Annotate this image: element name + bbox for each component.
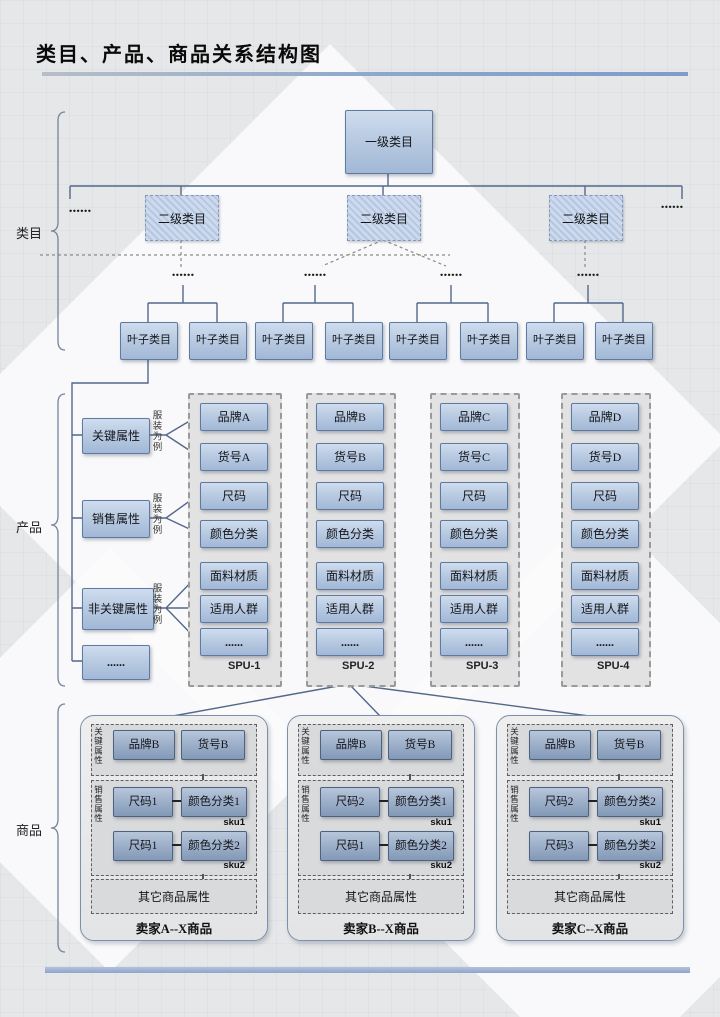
- sku-size-box: 尺码2: [320, 787, 380, 817]
- spu2-attr: 品牌B: [316, 403, 384, 431]
- sku-tag: sku2: [388, 860, 452, 871]
- attr-group-key: 关键属性: [82, 418, 150, 454]
- attr-group-nonkey: 非关键属性: [82, 588, 154, 630]
- item-no-box: 货号B: [597, 730, 661, 760]
- sales-attr-vertical-label: 销售属性: [510, 785, 519, 835]
- key-attr-vertical-label: 关键属性: [94, 727, 103, 773]
- spu4-attr: 适用人群: [571, 595, 639, 623]
- title-rule: [42, 72, 688, 76]
- footer-bar: [45, 967, 690, 973]
- level2-category-box: 二级类目: [145, 195, 219, 241]
- spu3-attr: ......: [440, 628, 508, 656]
- brand-box: 品牌B: [113, 730, 175, 760]
- section-label-product: 产品: [16, 517, 42, 536]
- spu2-attr: 适用人群: [316, 595, 384, 623]
- ellipsis-omitted-levels: ......: [565, 264, 611, 281]
- sku-tag: sku1: [181, 817, 245, 828]
- sku-size-box: 尺码1: [113, 831, 173, 861]
- group-connector: [409, 774, 411, 780]
- group-connector: [202, 874, 204, 879]
- sku-tag: sku2: [597, 860, 661, 871]
- spu1-attr: 品牌A: [200, 403, 268, 431]
- group-connector: [202, 774, 204, 780]
- other-attr-label: 其它商品属性: [345, 888, 417, 905]
- sku-link: [379, 800, 388, 802]
- root-category-box: 一级类目: [345, 110, 433, 174]
- sku-size-box: 尺码2: [529, 787, 589, 817]
- leaf-category-box: 叶子类目: [526, 322, 584, 360]
- sku-link: [379, 844, 388, 846]
- seller-card-label: 卖家A--X商品: [81, 918, 267, 937]
- spu3-attr: 货号C: [440, 443, 508, 471]
- leaf-category-box: 叶子类目: [595, 322, 653, 360]
- spu3-attr: 尺码: [440, 482, 508, 510]
- spu2-label: SPU-2: [342, 660, 374, 672]
- leaf-category-box: 叶子类目: [189, 322, 247, 360]
- group-connector: [409, 874, 411, 879]
- spu3-attr: 适用人群: [440, 595, 508, 623]
- note-clothing-example: 服装为例: [150, 410, 160, 464]
- sku-color-box: 颜色分类2: [597, 787, 663, 817]
- spu1-attr: 适用人群: [200, 595, 268, 623]
- sku-link: [172, 800, 181, 802]
- spu1-attr: ......: [200, 628, 268, 656]
- spu3-attr: 面料材质: [440, 562, 508, 590]
- ellipsis-omitted-levels: ......: [428, 264, 474, 281]
- ellipsis-more-categories: ......: [648, 196, 696, 213]
- leaf-category-box: 叶子类目: [389, 322, 447, 360]
- sku-tag: sku1: [597, 817, 661, 828]
- sku-size-box: 尺码3: [529, 831, 589, 861]
- sku-link: [588, 844, 597, 846]
- seller-card-label: 卖家C--X商品: [497, 918, 683, 937]
- section-label-category: 类目: [16, 223, 42, 242]
- spu2-attr: 货号B: [316, 443, 384, 471]
- other-attr-group: 其它商品属性: [91, 879, 257, 914]
- spu4-attr: 尺码: [571, 482, 639, 510]
- sku-link: [588, 800, 597, 802]
- leaf-category-box: 叶子类目: [460, 322, 518, 360]
- ellipsis-more-categories: ......: [56, 200, 104, 217]
- spu4-attr: 颜色分类: [571, 520, 639, 548]
- attr-group-more: ......: [82, 645, 150, 680]
- brand-box: 品牌B: [529, 730, 591, 760]
- spu1-attr: 尺码: [200, 482, 268, 510]
- page-title: 类目、产品、商品关系结构图: [36, 38, 322, 67]
- group-connector: [618, 774, 620, 780]
- sku-tag: sku1: [388, 817, 452, 828]
- spu3-attr: 品牌C: [440, 403, 508, 431]
- other-attr-group: 其它商品属性: [507, 879, 673, 914]
- ellipsis-omitted-levels: ......: [160, 264, 206, 281]
- key-attr-vertical-label: 关键属性: [510, 727, 519, 773]
- section-braces: [51, 112, 65, 952]
- item-no-box: 货号B: [388, 730, 452, 760]
- key-attr-vertical-label: 关键属性: [301, 727, 310, 773]
- spu4-label: SPU-4: [597, 660, 629, 672]
- spu2-attr: 面料材质: [316, 562, 384, 590]
- leaf-category-box: 叶子类目: [325, 322, 383, 360]
- group-connector: [618, 874, 620, 879]
- brand-box: 品牌B: [320, 730, 382, 760]
- spu1-attr: 面料材质: [200, 562, 268, 590]
- sales-attr-vertical-label: 销售属性: [94, 785, 103, 835]
- spu4-attr: ......: [571, 628, 639, 656]
- level2-category-box: 二级类目: [347, 195, 421, 241]
- spu2-attr: ......: [316, 628, 384, 656]
- spu4-attr: 面料材质: [571, 562, 639, 590]
- diagram-canvas: 类目、产品、商品关系结构图 类目 产品 商品 一级类目 二级类目 二级类目 二级…: [0, 0, 720, 1017]
- spu4-attr: 品牌D: [571, 403, 639, 431]
- spu4-attr: 货号D: [571, 443, 639, 471]
- sku-size-box: 尺码1: [113, 787, 173, 817]
- sku-size-box: 尺码1: [320, 831, 380, 861]
- item-no-box: 货号B: [181, 730, 245, 760]
- sku-link: [172, 844, 181, 846]
- spu1-attr: 货号A: [200, 443, 268, 471]
- attr-group-sales: 销售属性: [82, 500, 150, 538]
- spu3-label: SPU-3: [466, 660, 498, 672]
- section-label-goods: 商品: [16, 820, 42, 839]
- seller-card-label: 卖家B--X商品: [288, 918, 474, 937]
- leaf-category-box: 叶子类目: [255, 322, 313, 360]
- sku-color-box: 颜色分类2: [597, 831, 663, 861]
- note-clothing-example: 服装为例: [150, 583, 160, 637]
- sku-color-box: 颜色分类1: [181, 787, 247, 817]
- sku-tag: sku2: [181, 860, 245, 871]
- spu2-attr: 尺码: [316, 482, 384, 510]
- ellipsis-omitted-levels: ......: [292, 264, 338, 281]
- spu2-attr: 颜色分类: [316, 520, 384, 548]
- seller-card-b: 关键属性 品牌B 货号B 销售属性 尺码2 颜色分类1 sku1 尺码1 颜色分…: [287, 715, 475, 941]
- seller-card-c: 关键属性 品牌B 货号B 销售属性 尺码2 颜色分类2 sku1 尺码3 颜色分…: [496, 715, 684, 941]
- spu1-label: SPU-1: [228, 660, 260, 672]
- level2-category-box: 二级类目: [549, 195, 623, 241]
- other-attr-label: 其它商品属性: [554, 888, 626, 905]
- note-clothing-example: 服装为例: [150, 493, 160, 547]
- leaf-category-box: 叶子类目: [120, 322, 178, 360]
- other-attr-group: 其它商品属性: [298, 879, 464, 914]
- sales-attr-vertical-label: 销售属性: [301, 785, 310, 835]
- spu1-attr: 颜色分类: [200, 520, 268, 548]
- other-attr-label: 其它商品属性: [138, 888, 210, 905]
- sku-color-box: 颜色分类2: [388, 831, 454, 861]
- seller-card-a: 关键属性 品牌B 货号B 销售属性 尺码1 颜色分类1 sku1 尺码1 颜色分…: [80, 715, 268, 941]
- sku-color-box: 颜色分类2: [181, 831, 247, 861]
- spu3-attr: 颜色分类: [440, 520, 508, 548]
- sku-color-box: 颜色分类1: [388, 787, 454, 817]
